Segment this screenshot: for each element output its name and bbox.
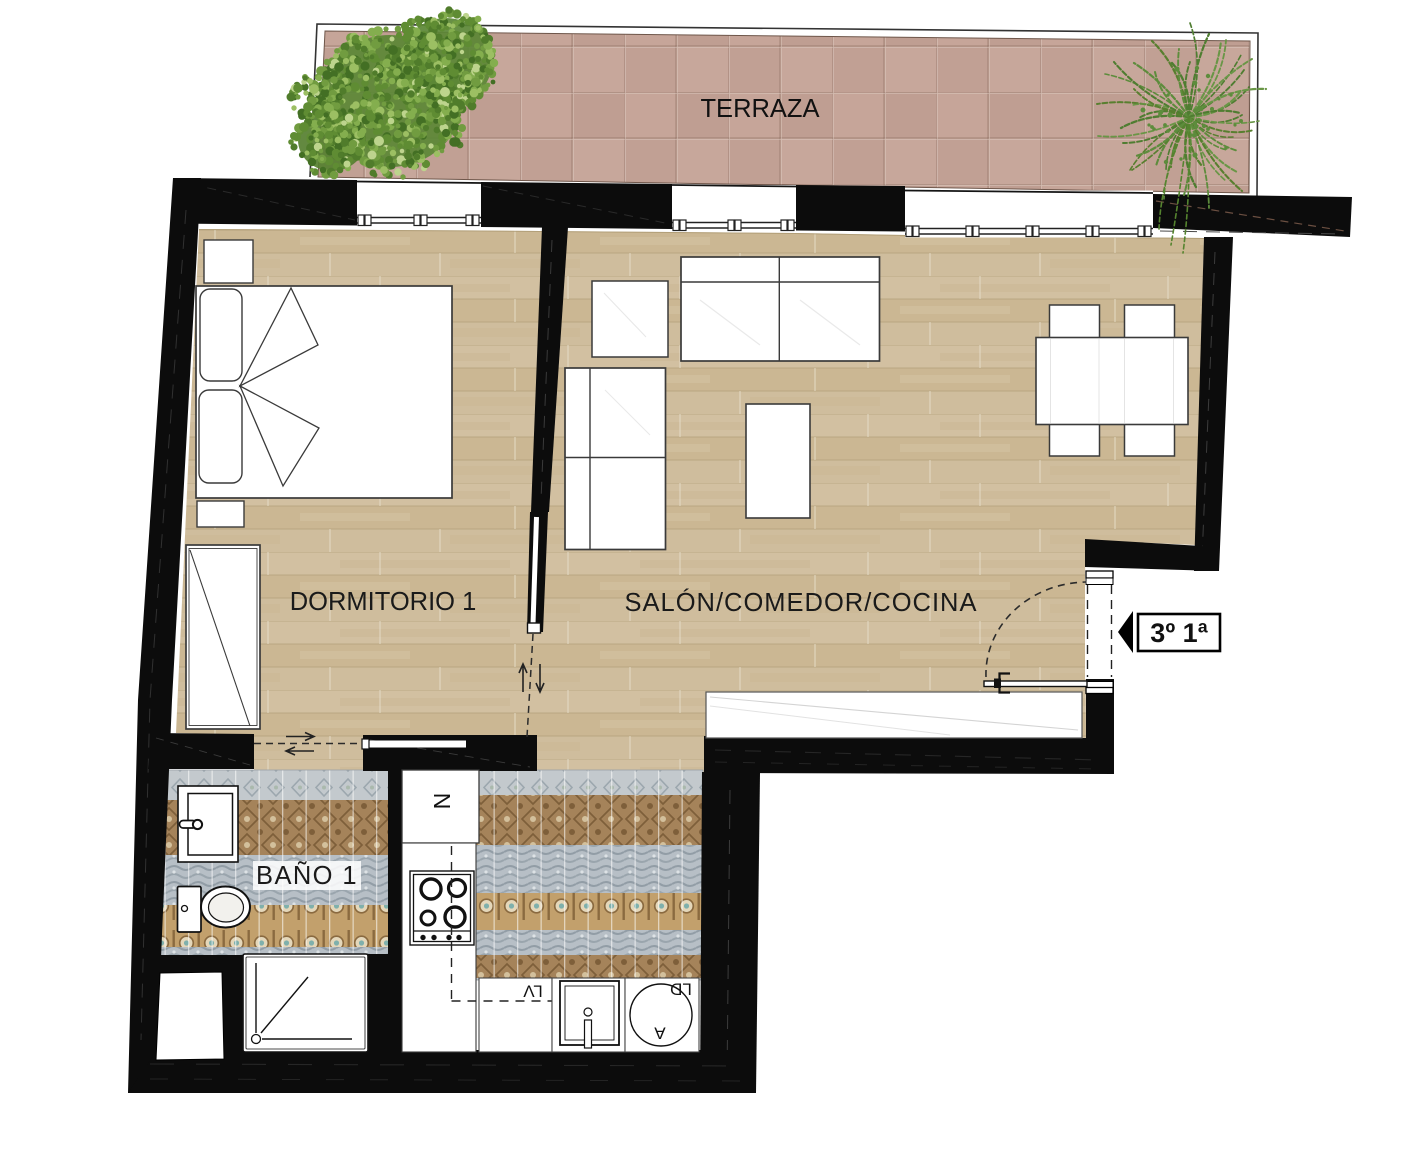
- svg-text:DORMITORIO 1: DORMITORIO 1: [290, 588, 477, 616]
- svg-text:LD: LD: [670, 980, 692, 999]
- svg-text:N: N: [429, 793, 455, 810]
- svg-text:LV: LV: [523, 982, 543, 1001]
- svg-text:TERRAZA: TERRAZA: [700, 95, 819, 123]
- svg-text:SALÓN/COMEDOR/COCINA: SALÓN/COMEDOR/COCINA: [625, 588, 978, 617]
- svg-text:A: A: [654, 1024, 666, 1043]
- svg-text:BAÑO 1: BAÑO 1: [256, 861, 358, 890]
- svg-text:3º 1ª: 3º 1ª: [1150, 618, 1207, 648]
